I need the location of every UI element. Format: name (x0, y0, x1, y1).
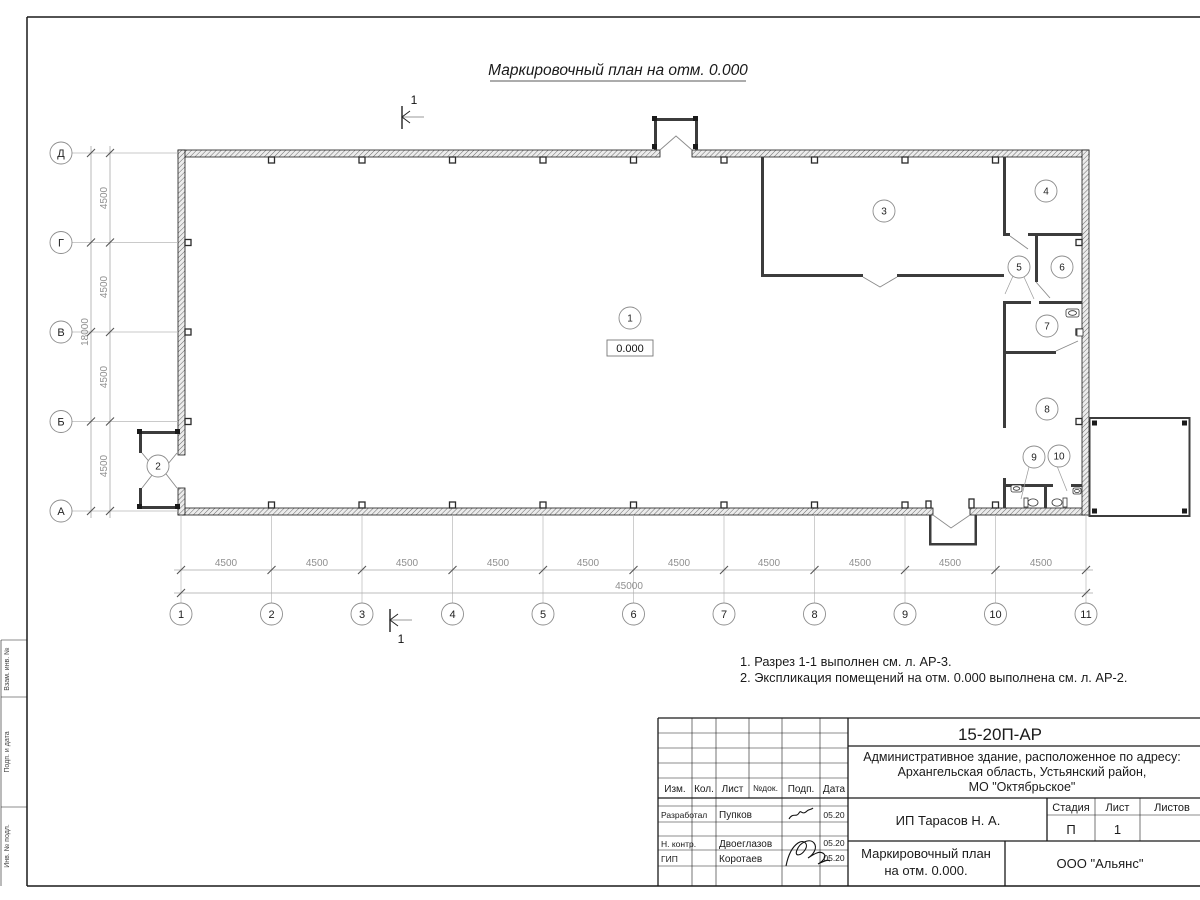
room-tag: 10 (1048, 445, 1070, 467)
project-address-line: Архангельская область, Устьянский район, (898, 765, 1147, 779)
dim-label: 4500 (939, 558, 962, 569)
room-number: 7 (1044, 322, 1050, 333)
client-name: ИП Тарасов Н. А. (896, 813, 1001, 828)
axis-bubble-label: 6 (630, 609, 636, 621)
dim-label: 4500 (1030, 558, 1053, 569)
dim-label: 4500 (99, 454, 110, 477)
dim-label: 4500 (396, 558, 419, 569)
doors (142, 136, 1078, 528)
entrance-vestibule-top (652, 116, 698, 150)
dim-label: 4500 (487, 558, 510, 569)
room-tag: 4 (1035, 180, 1057, 202)
col-header-izm: Изм. (664, 784, 685, 795)
project-address-line: МО "Октябрьское" (969, 780, 1076, 794)
axis-bubble-label: 10 (989, 609, 1001, 621)
axis-bubble-label: 5 (540, 609, 546, 621)
row-role: ГИП (661, 854, 678, 864)
row-role: Разработал (661, 810, 707, 820)
section-mark-bottom: 1 (390, 609, 412, 646)
toilet-icon (1052, 498, 1067, 507)
drawing-sheet: Взам. инв. № Подп. и дата Инв. № подл. М… (0, 0, 1200, 900)
dim-label: 4500 (577, 558, 600, 569)
row-name: Двоеглазов (719, 839, 772, 850)
room-number: 5 (1016, 263, 1022, 274)
axis-bubble-label: А (57, 506, 65, 518)
dim-label: 4500 (99, 186, 110, 209)
room-number: 6 (1059, 263, 1065, 274)
axis-bubble-label: 9 (902, 609, 908, 621)
notes: 1. Разрез 1-1 выполнен см. л. АР-3. 2. Э… (740, 654, 1127, 685)
row-date: 05.20 (823, 838, 845, 848)
row-name: Коротаев (719, 854, 762, 865)
stage-value: П (1066, 822, 1075, 837)
building-walls (178, 150, 1089, 515)
room-tag: 1 (619, 307, 641, 329)
room-number: 2 (155, 462, 161, 473)
room-number: 8 (1044, 405, 1050, 416)
axis-bubble-label: В (57, 327, 64, 339)
drawing-title: Маркировочный план на отм. 0.000 (488, 62, 748, 81)
sink-icon (1011, 485, 1022, 492)
sheet-value: 1 (1114, 822, 1121, 837)
structural-columns (185, 157, 1082, 508)
dim-label: 4500 (758, 558, 781, 569)
dim-label: 4500 (99, 275, 110, 298)
side-stamp-label: Подп. и дата (4, 731, 11, 772)
col-header-podp: Подп. (788, 784, 815, 795)
wall-fixture-icon (1077, 329, 1083, 336)
project-address-line: Административное здание, расположенное п… (863, 750, 1180, 764)
room-number: 9 (1031, 453, 1037, 464)
row-role: Н. контр. (661, 839, 696, 849)
side-stamp: Взам. инв. № Подп. и дата Инв. № подл. (4, 647, 11, 867)
dim-label: 4500 (668, 558, 691, 569)
room-tag: 6 (1051, 256, 1073, 278)
floor-plan-drawing: Взам. инв. № Подп. и дата Инв. № подл. М… (0, 0, 1200, 900)
room-tag: 8 (1036, 398, 1058, 420)
room-number: 3 (881, 207, 887, 218)
dim-label: 4500 (306, 558, 329, 569)
section-label: 1 (398, 632, 405, 646)
axis-bubble-label: 11 (1080, 609, 1091, 621)
room-tag: 3 (873, 200, 895, 222)
sink-icon (1066, 309, 1079, 317)
dim-label: 4500 (99, 365, 110, 388)
axis-grid-bottom: 4500 4500 4500 4500 4500 4500 4500 4500 … (170, 515, 1097, 625)
room-tag: 5 (1008, 256, 1030, 278)
col-header-data: Дата (823, 784, 846, 795)
exit-porch-bottom (926, 499, 977, 546)
drawing-name-line: Маркировочный план (861, 846, 991, 861)
axis-bubble-label: 2 (268, 609, 274, 621)
col-header-kol: Кол. (694, 784, 714, 795)
side-stamp-label: Взам. инв. № (4, 647, 11, 690)
organization-name: ООО "Альянс" (1057, 856, 1144, 871)
room-number: 1 (627, 314, 633, 325)
room-number: 10 (1053, 452, 1065, 463)
note-line: 2. Экспликация помещений на отм. 0.000 в… (740, 670, 1127, 685)
col-header-ndok: №док. (753, 783, 778, 793)
sheets-header: Листов (1154, 802, 1190, 814)
room-tags: 1 2 3 4 5 6 7 8 9 10 (147, 180, 1073, 477)
elevation-mark: 0.000 (607, 340, 653, 356)
axis-bubble-label: Г (58, 238, 64, 250)
dim-label: 4500 (849, 558, 872, 569)
signature (789, 808, 813, 819)
side-stamp-label: Инв. № подл. (4, 824, 11, 868)
section-label: 1 (411, 93, 418, 107)
axis-bubble-label: 4 (449, 609, 455, 621)
row-date: 05.20 (823, 810, 845, 820)
section-mark-top: 1 (402, 93, 424, 129)
sink-icon (1073, 488, 1081, 494)
room-tag: 9 (1023, 446, 1045, 468)
dim-label: 4500 (215, 558, 238, 569)
doc-number: 15-20П-АР (958, 725, 1042, 744)
elevation-value: 0.000 (616, 343, 644, 355)
axis-bubble-label: 1 (178, 609, 184, 621)
plan-title: Маркировочный план на отм. 0.000 (488, 62, 748, 79)
axis-bubble-label: 7 (721, 609, 727, 621)
toilet-icon (1024, 498, 1038, 507)
axis-bubble-label: 8 (811, 609, 817, 621)
axis-bubble-label: 3 (359, 609, 365, 621)
row-date: 05.20 (823, 853, 845, 863)
title-block: 15-20П-АР Административное здание, распо… (658, 718, 1200, 886)
note-line: 1. Разрез 1-1 выполнен см. л. АР-3. (740, 654, 952, 669)
axis-bubble-label: Д (57, 148, 65, 160)
dim-total-label: 45000 (615, 581, 643, 592)
stage-header: Стадия (1052, 802, 1090, 814)
room-number: 4 (1043, 187, 1049, 198)
sheet-header: Лист (1106, 802, 1130, 814)
room-tag: 7 (1036, 315, 1058, 337)
room-tag: 2 (147, 455, 169, 477)
row-name: Пупков (719, 810, 752, 821)
axis-bubble-label: Б (57, 417, 64, 429)
dim-total-label: 18000 (80, 318, 91, 346)
col-header-list: Лист (722, 784, 744, 795)
open-platform-right (1090, 418, 1190, 516)
drawing-name-line: на отм. 0.000. (884, 863, 967, 878)
